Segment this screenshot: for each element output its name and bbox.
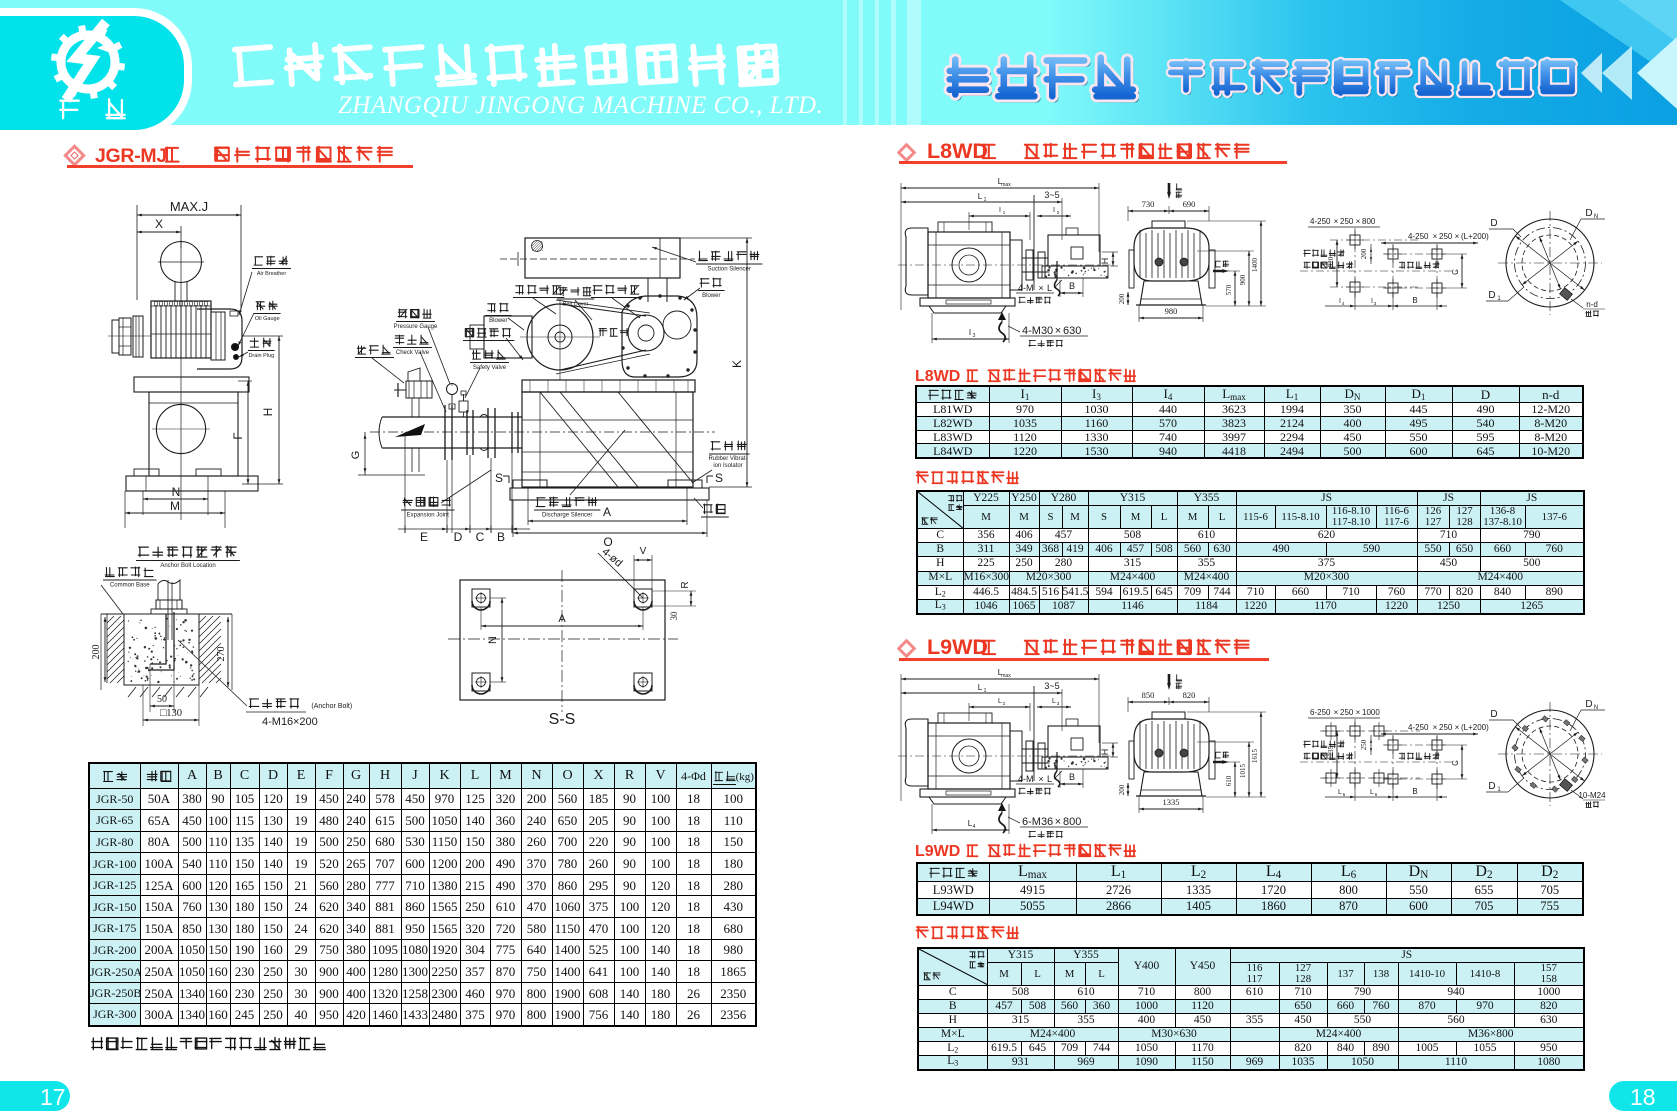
svg-text:B: B bbox=[1412, 787, 1417, 796]
svg-text:1335: 1335 bbox=[1163, 797, 1180, 807]
svg-text:1615: 1615 bbox=[1251, 749, 1259, 764]
svg-text:B: B bbox=[1069, 772, 1075, 782]
svg-text:max: max bbox=[1001, 673, 1011, 679]
svg-text:G: G bbox=[350, 451, 362, 460]
svg-text:C: C bbox=[1451, 760, 1460, 766]
svg-text:4-M16: 4-M16 bbox=[262, 716, 293, 728]
svg-text:Suction Silencer: Suction Silencer bbox=[708, 267, 751, 273]
svg-text:D: D bbox=[454, 530, 463, 544]
svg-text:630: 630 bbox=[1063, 325, 1081, 337]
svg-text:S-S: S-S bbox=[549, 711, 576, 728]
svg-text:Discharge Silencer: Discharge Silencer bbox=[542, 513, 592, 519]
svg-text:3~5: 3~5 bbox=[1044, 190, 1059, 200]
svg-text:900: 900 bbox=[1239, 274, 1247, 285]
svg-text:I: I bbox=[1339, 298, 1341, 305]
svg-text:(L+200): (L+200) bbox=[1461, 232, 1489, 241]
svg-text:F: F bbox=[231, 432, 245, 439]
svg-text:I: I bbox=[969, 328, 971, 337]
svg-text:H: H bbox=[261, 408, 275, 417]
svg-text:D: D bbox=[1488, 781, 1495, 792]
svg-text:C: C bbox=[1451, 269, 1460, 275]
svg-text:30: 30 bbox=[669, 611, 679, 621]
svg-text:2: 2 bbox=[1057, 210, 1060, 215]
svg-text:10-M24: 10-M24 bbox=[1578, 791, 1606, 800]
svg-text:Oil Gauge: Oil Gauge bbox=[255, 316, 280, 322]
svg-text:X: X bbox=[155, 217, 163, 231]
svg-text:L: L bbox=[1052, 698, 1056, 705]
svg-text:L: L bbox=[998, 698, 1002, 705]
svg-text:6: 6 bbox=[1375, 792, 1378, 797]
svg-text:730: 730 bbox=[1142, 199, 1155, 209]
svg-text:L: L bbox=[978, 192, 983, 201]
svg-text:2: 2 bbox=[1003, 701, 1006, 706]
svg-text:×: × bbox=[1433, 232, 1438, 241]
svg-text:250: 250 bbox=[1340, 217, 1354, 226]
svg-text:I: I bbox=[1371, 298, 1373, 305]
svg-text:D: D bbox=[1585, 208, 1592, 219]
svg-text:L8WD: L8WD bbox=[927, 139, 988, 163]
svg-text:Air Breather: Air Breather bbox=[257, 271, 287, 277]
svg-text:1400: 1400 bbox=[1251, 258, 1259, 273]
svg-text:Belt Cover: Belt Cover bbox=[563, 302, 589, 308]
svg-text:n-d: n-d bbox=[1586, 300, 1598, 309]
svg-text:1: 1 bbox=[984, 688, 987, 694]
svg-text:×: × bbox=[1455, 232, 1460, 241]
svg-text:V: V bbox=[640, 546, 647, 557]
svg-text:3: 3 bbox=[973, 333, 976, 339]
svg-text:4-M: 4-M bbox=[1018, 283, 1034, 293]
svg-text:200: 200 bbox=[1118, 784, 1126, 795]
svg-text:(Anchor Bolt): (Anchor Bolt) bbox=[311, 703, 352, 710]
svg-text:C: C bbox=[476, 530, 485, 544]
svg-text:×: × bbox=[1433, 723, 1438, 732]
svg-text:B: B bbox=[497, 530, 505, 544]
svg-text:1: 1 bbox=[984, 197, 987, 203]
svg-text:4-250: 4-250 bbox=[1310, 217, 1331, 226]
svg-text:1: 1 bbox=[1003, 210, 1006, 215]
svg-text:×: × bbox=[1038, 774, 1043, 784]
svg-text:H: H bbox=[1100, 749, 1110, 756]
svg-text:L9WD: L9WD bbox=[927, 635, 988, 659]
svg-text:980: 980 bbox=[1165, 306, 1178, 316]
svg-text:920: 920 bbox=[1327, 256, 1335, 267]
svg-text:×: × bbox=[1455, 723, 1460, 732]
svg-text:L: L bbox=[1370, 789, 1374, 796]
svg-text:Anchor Bolt Location: Anchor Bolt Location bbox=[160, 563, 215, 569]
svg-text:690: 690 bbox=[1183, 199, 1196, 209]
svg-text:MAX.J: MAX.J bbox=[170, 199, 208, 214]
svg-text:5: 5 bbox=[1343, 792, 1346, 797]
svg-text:Expansion Joint: Expansion Joint bbox=[407, 513, 450, 519]
svg-text:Common Base: Common Base bbox=[110, 583, 150, 589]
svg-text:3: 3 bbox=[1057, 701, 1060, 706]
svg-text:Pressure Gauge: Pressure Gauge bbox=[394, 324, 438, 330]
svg-text:×: × bbox=[1055, 325, 1061, 337]
svg-text:6-250: 6-250 bbox=[1310, 708, 1331, 717]
svg-text:I: I bbox=[999, 207, 1001, 214]
svg-text:4-250: 4-250 bbox=[1408, 232, 1429, 241]
svg-text:A: A bbox=[603, 505, 611, 519]
svg-text:D: D bbox=[1490, 709, 1497, 720]
svg-text:×: × bbox=[1334, 708, 1339, 717]
svg-text:×: × bbox=[1356, 708, 1361, 717]
svg-text:M: M bbox=[170, 499, 180, 513]
svg-text:4-250: 4-250 bbox=[1408, 723, 1429, 732]
svg-text:3~5: 3~5 bbox=[1044, 681, 1059, 691]
svg-text:L: L bbox=[1338, 789, 1342, 796]
svg-text:×200: ×200 bbox=[293, 716, 318, 728]
svg-text:L8WD: L8WD bbox=[915, 368, 960, 385]
svg-text:Drain Plug: Drain Plug bbox=[248, 353, 274, 359]
svg-text:I: I bbox=[1053, 207, 1055, 214]
svg-text:200: 200 bbox=[1360, 248, 1368, 259]
svg-text:Check Valve: Check Valve bbox=[396, 350, 430, 356]
svg-text:610: 610 bbox=[1225, 775, 1233, 786]
svg-text:max: max bbox=[1001, 182, 1011, 188]
svg-text:×: × bbox=[1038, 283, 1043, 293]
svg-text:Rubber Vibrat-: Rubber Vibrat- bbox=[709, 456, 748, 462]
svg-text:200: 200 bbox=[1118, 293, 1126, 304]
svg-text:D: D bbox=[1585, 699, 1592, 710]
svg-text:250: 250 bbox=[1360, 739, 1368, 750]
svg-text:□130: □130 bbox=[160, 708, 182, 719]
svg-text:1000: 1000 bbox=[1362, 708, 1380, 717]
svg-text:250: 250 bbox=[1340, 708, 1354, 717]
svg-text:6-M36: 6-M36 bbox=[1022, 816, 1053, 828]
svg-text:800: 800 bbox=[1362, 217, 1376, 226]
svg-text:850: 850 bbox=[1142, 690, 1155, 700]
svg-text:4: 4 bbox=[1342, 301, 1345, 306]
svg-text:Blower: Blower bbox=[702, 293, 720, 299]
svg-text:L: L bbox=[1047, 774, 1052, 784]
svg-text:B: B bbox=[1069, 281, 1075, 291]
svg-text:(L+200): (L+200) bbox=[1461, 723, 1489, 732]
svg-text:B: B bbox=[1412, 296, 1417, 305]
svg-text:A: A bbox=[558, 613, 566, 625]
svg-text:R: R bbox=[680, 581, 691, 588]
svg-text:4-M30: 4-M30 bbox=[1022, 325, 1053, 337]
svg-text:820: 820 bbox=[1183, 690, 1196, 700]
svg-text:1015: 1015 bbox=[1239, 764, 1247, 779]
svg-text:250: 250 bbox=[1439, 723, 1453, 732]
svg-text:D: D bbox=[1490, 218, 1497, 229]
svg-text:Blower: Blower bbox=[489, 318, 507, 324]
svg-text:800: 800 bbox=[1063, 816, 1081, 828]
svg-text:3: 3 bbox=[1374, 301, 1377, 306]
svg-text:250: 250 bbox=[1439, 232, 1453, 241]
svg-text:×: × bbox=[1055, 816, 1061, 828]
svg-text:4-M: 4-M bbox=[1018, 774, 1034, 784]
svg-text:50: 50 bbox=[157, 694, 167, 705]
svg-text:H: H bbox=[1100, 258, 1110, 265]
svg-text:570: 570 bbox=[1225, 284, 1233, 295]
svg-text:L9WD: L9WD bbox=[915, 843, 960, 860]
svg-text:E: E bbox=[420, 530, 428, 544]
svg-text:4: 4 bbox=[973, 824, 976, 830]
svg-text:L: L bbox=[1047, 283, 1052, 293]
svg-text:×: × bbox=[1356, 217, 1361, 226]
svg-text:×: × bbox=[1334, 217, 1339, 226]
svg-text:L: L bbox=[978, 683, 983, 692]
svg-text:D: D bbox=[1488, 290, 1495, 301]
